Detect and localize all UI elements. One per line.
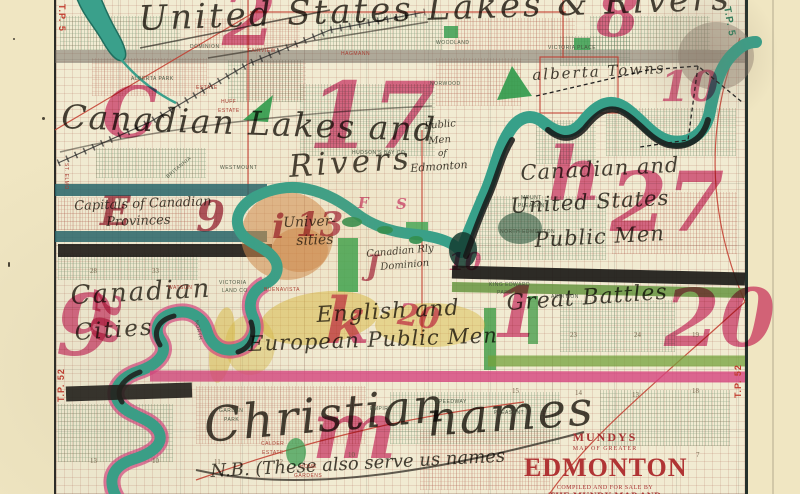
section-number-11: 11 [214,459,221,466]
ink-number-20-mid: 20 [396,300,442,336]
map-label-25: GARDEN [219,409,243,414]
section-number-5: 15 [512,388,519,395]
note-english-european-2: European Public Men [248,325,498,355]
map-label-30: HOME [300,465,317,470]
map-label-15: NORTH EDMONTON [500,230,555,235]
section-number-14: 7 [696,452,700,459]
section-number-8: 18 [692,388,699,395]
map-label-18: LAND CO [222,289,248,294]
section-number-0: 28 [90,268,97,275]
note-capitals-1: Capitals of Canadian [74,195,212,213]
map-label-14: PLEASANT [518,204,548,209]
ink-letter-e: E [100,192,131,232]
ink-letter-h: h [548,138,602,212]
map-label-10: WESTMOUNT [220,166,257,171]
section-number-12: 12 [276,459,283,466]
ink-number-13-mid: 13 [296,208,343,242]
map-label-5: ESTATE [218,109,240,114]
map-title-block: MUNDYS MAP OF GREATER EDMONTON COMPILED … [524,430,686,494]
title-compiled-line: COMPILED AND FOR SALE BY [524,485,686,491]
scanned-map-of-edmonton: United States Lakes & RiversCanadian Lak… [0,0,800,494]
ink-number-20-se: 20 [664,278,775,358]
edge-label-3: T.P. 52 [734,364,743,398]
map-label-22: ADDITION [551,295,579,300]
map-label-21: PARK [497,291,512,296]
map-label-19: WATSON [168,286,192,291]
ink-letter-s: S [396,197,407,212]
map-label-20: KING EDWARD [489,283,530,288]
map-label-16: BUENAVISTA [264,288,300,293]
map-label-23: SPEEDWAY [435,400,467,405]
edge-label-2: T.P. 52 [57,368,66,402]
map-title-city: EDMONTON [524,453,686,483]
ink-number-17: 17 [308,70,436,162]
section-number-4: 19 [692,332,699,339]
map-label-31: GARDENS [294,474,322,479]
map-label-33: ST. ELMO [63,163,68,190]
ink-number-10-mid: 10 [448,250,481,274]
section-number-7: 13 [632,392,639,399]
map-label-12: HUDSON'S BAY CO [352,151,405,156]
map-label-1: FAIRVIEW [248,49,276,54]
paper-speck [42,117,45,120]
ink-number-10-ne: 10 [660,66,718,108]
map-label-9: BRITANNIA [166,156,193,180]
edge-label-1: T.P. 5 [721,6,736,38]
map-label-11: NORWOOD [430,82,461,87]
section-number-10: 10 [152,458,159,465]
map-text-layer: United States Lakes & RiversCanadian Lak… [0,0,800,494]
section-number-3: 24 [634,332,641,339]
map-label-24: PLEASANT [494,411,524,416]
ink-letter-f: F [358,196,369,211]
ink-number-1-s: 1 [492,278,541,348]
map-label-7: WOODLAND [436,41,469,46]
map-label-28: CALDER [261,442,284,447]
map-label-27: EMPIRE [370,407,392,412]
map-label-0: DOMINION [190,45,220,50]
map-label-8: VICTORIA PLACE [548,46,596,51]
section-number-13: 10 [348,452,355,459]
map-label-6: HAGMANN [341,52,370,57]
map-label-3: ESTATE [196,86,218,91]
paper-speck [8,262,10,267]
ink-letter-c: C [102,78,158,148]
note-alberta-towns: alberta Towns [532,61,666,83]
edge-label-0: T.P. 5 [57,4,66,32]
paper-crease [772,0,774,494]
ink-letter-j: J [366,252,379,280]
map-label-13: MOUNT [521,196,542,201]
ink-number-27: 27 [610,162,724,244]
map-label-26: PARK [224,418,239,423]
map-label-2: ALBERTA PARK [131,77,174,82]
map-label-4: HUFF [221,100,236,105]
map-label-17: VICTORIA [219,281,247,286]
note-can-rly-2: Dominion [380,259,430,273]
section-number-6: 14 [575,390,582,397]
map-label-32: NORTH [193,320,202,341]
note-public-men-edm-3: of [438,150,447,159]
ink-number-9-mid: 9 [196,196,225,238]
ink-letter-i: i [272,210,285,244]
section-number-9: 13 [90,458,97,465]
paper-speck [13,38,15,40]
section-number-2: 23 [570,332,577,339]
section-number-1: 33 [152,268,159,275]
ink-number-8-top: 8 [596,0,639,46]
ink-number-20-w: 20 [84,289,126,345]
title-subtitle: MAP OF GREATER [524,446,686,452]
ink-letter-k: k [325,290,369,354]
map-label-29: ESTATE [262,451,284,456]
publisher-name: MUNDYS [524,430,686,445]
